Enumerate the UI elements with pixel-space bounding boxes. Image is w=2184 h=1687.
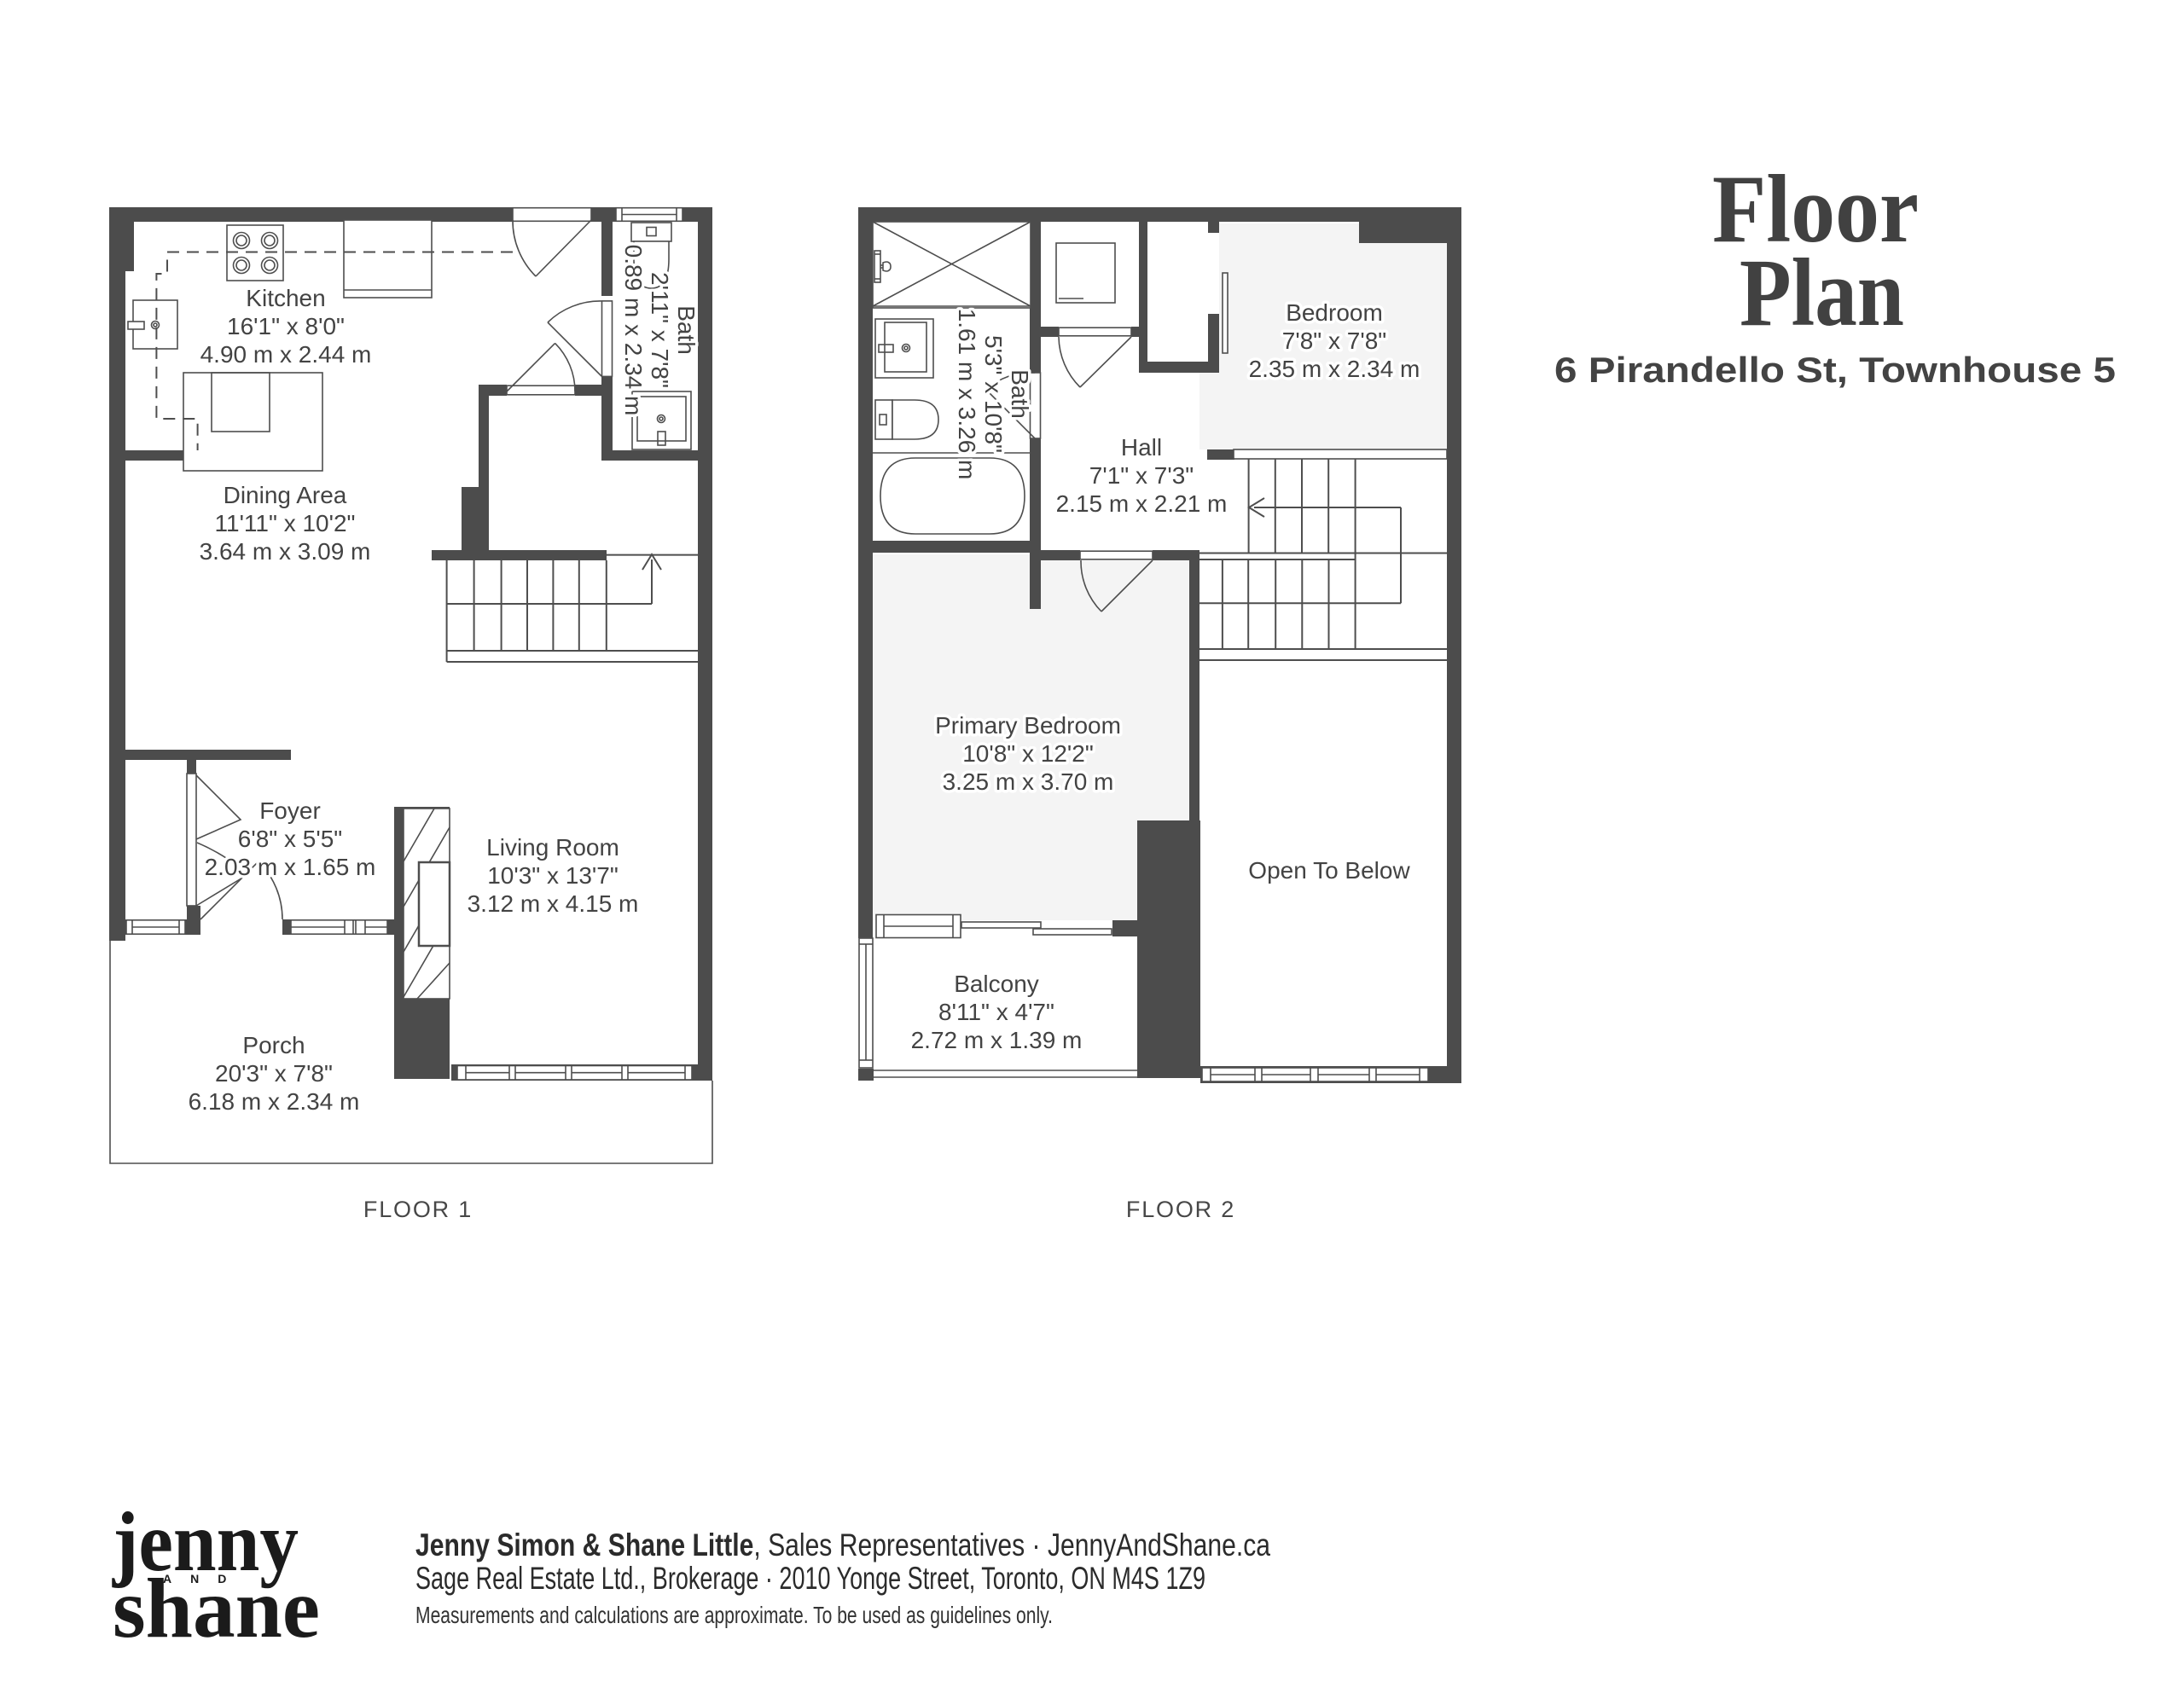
svg-text:2.15 m x 2.21 m: 2.15 m x 2.21 m	[1056, 490, 1228, 517]
svg-text:6 Pirandello St, Townhouse 5: 6 Pirandello St, Townhouse 5	[1554, 350, 2116, 390]
svg-text:FLOOR 1: FLOOR 1	[363, 1197, 473, 1222]
svg-text:6'8" x 5'5": 6'8" x 5'5"	[238, 826, 342, 852]
svg-text:6.18 m x 2.34 m: 6.18 m x 2.34 m	[189, 1088, 360, 1115]
svg-text:3.25 m x 3.70 m: 3.25 m x 3.70 m	[943, 768, 1114, 795]
svg-text:Hall: Hall	[1121, 434, 1162, 461]
svg-text:4.90 m x 2.44 m: 4.90 m x 2.44 m	[200, 341, 372, 368]
svg-text:Open To Below: Open To Below	[1248, 857, 1410, 884]
svg-text:11'11" x 10'2": 11'11" x 10'2"	[215, 510, 356, 536]
svg-text:Kitchen: Kitchen	[246, 285, 325, 311]
svg-text:2.03 m x 1.65 m: 2.03 m x 1.65 m	[205, 854, 376, 880]
svg-text:Dining Area: Dining Area	[224, 482, 347, 508]
svg-text:10'3" x 13'7": 10'3" x 13'7"	[487, 862, 619, 889]
svg-text:5'3" x 10'8": 5'3" x 10'8"	[980, 335, 1007, 453]
svg-text:7'1" x 7'3": 7'1" x 7'3"	[1089, 462, 1194, 489]
svg-text:3.64 m x 3.09 m: 3.64 m x 3.09 m	[200, 538, 371, 565]
svg-text:20'3" x 7'8": 20'3" x 7'8"	[215, 1060, 333, 1087]
svg-text:2.35 m x 2.34 m: 2.35 m x 2.34 m	[1249, 356, 1420, 382]
svg-text:Porch: Porch	[242, 1032, 305, 1058]
svg-text:1.61 m x 3.26 m: 1.61 m x 3.26 m	[954, 309, 980, 480]
svg-text:Bath: Bath	[673, 305, 700, 355]
svg-text:Living Room: Living Room	[486, 834, 619, 861]
svg-text:Measurements and calculations: Measurements and calculations are approx…	[415, 1602, 1053, 1628]
svg-text:Bedroom: Bedroom	[1286, 299, 1383, 326]
svg-text:Balcony: Balcony	[954, 971, 1039, 997]
svg-text:Plan: Plan	[1740, 240, 1904, 346]
svg-text:shane: shane	[113, 1561, 320, 1655]
svg-text:Jenny Simon & Shane Little, Sa: Jenny Simon & Shane Little, Sales Repres…	[415, 1528, 1270, 1562]
svg-text:3.12 m x 4.15 m: 3.12 m x 4.15 m	[468, 890, 639, 917]
svg-text:Sage Real Estate Ltd., Brokera: Sage Real Estate Ltd., Brokerage · 2010 …	[415, 1561, 1205, 1596]
svg-text:8'11" x 4'7": 8'11" x 4'7"	[938, 999, 1054, 1025]
svg-text:Foyer: Foyer	[259, 797, 321, 824]
svg-text:0.89 m x 2.34 m: 0.89 m x 2.34 m	[620, 245, 647, 416]
svg-text:7'8" x 7'8": 7'8" x 7'8"	[1282, 328, 1386, 354]
svg-text:10'8" x 12'2": 10'8" x 12'2"	[962, 740, 1094, 767]
svg-text:Bath: Bath	[1007, 369, 1033, 419]
svg-text:2'11" x 7'8": 2'11" x 7'8"	[647, 272, 673, 388]
svg-text:2.72 m x 1.39 m: 2.72 m x 1.39 m	[911, 1027, 1083, 1053]
svg-text:FLOOR 2: FLOOR 2	[1126, 1197, 1235, 1222]
svg-text:Primary Bedroom: Primary Bedroom	[935, 712, 1121, 739]
svg-text:16'1" x 8'0": 16'1" x 8'0"	[227, 313, 345, 339]
